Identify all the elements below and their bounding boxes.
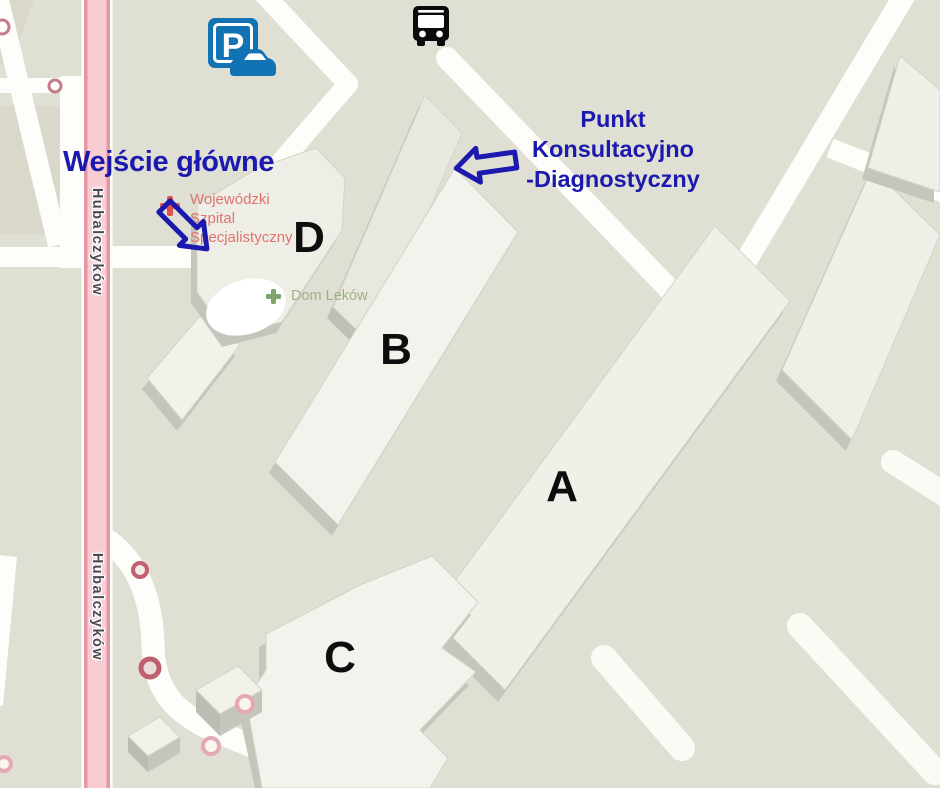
building-label-a: A bbox=[546, 465, 578, 509]
map-base bbox=[0, 0, 940, 788]
road-hubalczykow bbox=[82, 0, 113, 788]
pharmacy-poi-label: Dom Leków bbox=[291, 288, 368, 304]
building-label-c: C bbox=[324, 636, 356, 680]
parking-icon: P bbox=[204, 14, 282, 80]
bus-icon bbox=[408, 4, 454, 50]
pkd-annotation: Punkt Konsultacyjno -Diagnostyczny bbox=[526, 104, 700, 194]
street-label-hubalczykow-lower: Hubalczyków bbox=[89, 553, 105, 661]
building-label-b: B bbox=[380, 328, 412, 372]
main-entrance-annotation: Wejście główne bbox=[63, 146, 274, 179]
building-label-d: D bbox=[293, 216, 325, 260]
pharmacy-cross-icon bbox=[265, 288, 282, 305]
pkd-annotation-line: -Diagnostyczny bbox=[526, 164, 700, 194]
hospital-map: Hubalczyków Hubalczyków Wojewódzki Szpit… bbox=[0, 0, 940, 788]
pkd-annotation-line: Konsultacyjno bbox=[526, 134, 700, 164]
pkd-annotation-line: Punkt bbox=[526, 104, 700, 134]
hospital-poi-line: Wojewódzki bbox=[190, 190, 293, 209]
street-label-hubalczykow-upper: Hubalczyków bbox=[89, 188, 105, 296]
